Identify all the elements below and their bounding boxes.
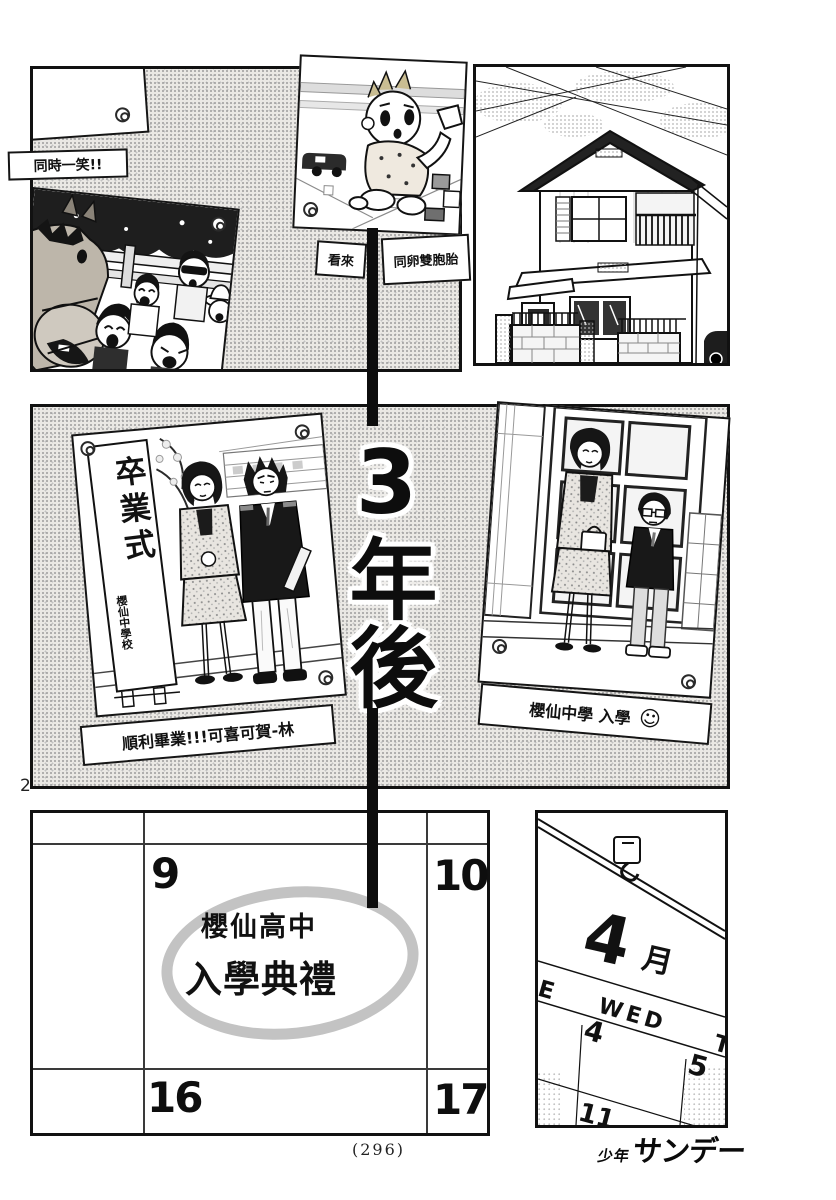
caption-smile: 同時一笑!!: [8, 148, 129, 180]
manga-page: 同時一笑!!: [0, 0, 836, 1200]
timeline-bar-bottom: [367, 708, 378, 908]
calendar-day-10: 10: [433, 851, 487, 900]
calendar-day-9: 9: [151, 849, 178, 898]
panel-wall-calendar: 4 月 E WED T 4 5 11: [535, 810, 728, 1128]
baby-photo-illustration: [294, 57, 465, 234]
logo-large-text: サンデー: [632, 1138, 747, 1166]
calendar-day-4: 4: [580, 1013, 607, 1050]
calendar-grid-line: [33, 1068, 487, 1070]
calendar-weekday-mid: WED: [596, 994, 670, 1037]
calendar-day-16: 16: [147, 1073, 201, 1122]
entrance-photo-illustration: [480, 403, 729, 696]
calendar-grid-line: [143, 813, 145, 1133]
photo-entrance: [477, 401, 730, 699]
note-ceremony: 入學典禮: [185, 949, 337, 1003]
wall-calendar-illustration: 4 月 E WED T 4 5 11: [538, 813, 725, 1125]
graduation-sign-school: 櫻仙中學校: [112, 594, 135, 651]
calendar-grid-line: [426, 813, 428, 1133]
caption-entrance-text: 櫻仙中學 入學: [528, 696, 631, 729]
calendar-weekday-right: T: [711, 1030, 725, 1059]
calendar-day-17: 17: [433, 1075, 487, 1124]
caption-baby-right-text: 同卵雙胞胎: [393, 248, 459, 270]
calendar-weekday-left: E: [538, 976, 557, 1005]
timeline-label: 3年後: [320, 420, 430, 720]
logo-small-text: 少年: [596, 1145, 632, 1166]
photo-horse: [30, 187, 240, 372]
panel-house: [473, 64, 730, 366]
photo-blank: [30, 66, 149, 141]
grommet-icon: [115, 107, 131, 123]
calendar-grid-line: [33, 843, 487, 845]
photo-graduation: 卒業式 櫻仙中學校: [71, 413, 347, 718]
shonen-sunday-logo: 少年 サンデー: [598, 1138, 745, 1166]
folio-number: (296): [352, 1140, 405, 1159]
caption-baby-left: 看來: [315, 240, 367, 278]
caption-graduation-text: 順利畢業!!!可喜可賀-林: [121, 716, 295, 755]
caption-baby-right: 同卵雙胞胎: [381, 234, 471, 286]
calendar-day-11: 11: [575, 1097, 618, 1125]
panel-calendar-closeup: 9 10 16 17 櫻仙高中 入學典禮: [30, 810, 490, 1136]
horse-photo-illustration: [30, 189, 240, 372]
caption-baby-left-text: 看來: [327, 249, 354, 270]
caption-smile-text: 同時一笑!!: [33, 154, 102, 176]
photo-baby: [292, 54, 467, 235]
calendar-month: 4: [576, 897, 638, 982]
smiley-doodle-icon: ☺: [637, 706, 663, 731]
page-number: 2: [20, 776, 31, 796]
calendar-month-unit: 月: [639, 941, 676, 982]
house-illustration: [476, 67, 727, 363]
timeline-bar-top: [367, 228, 378, 426]
note-school: 櫻仙高中: [201, 905, 317, 944]
